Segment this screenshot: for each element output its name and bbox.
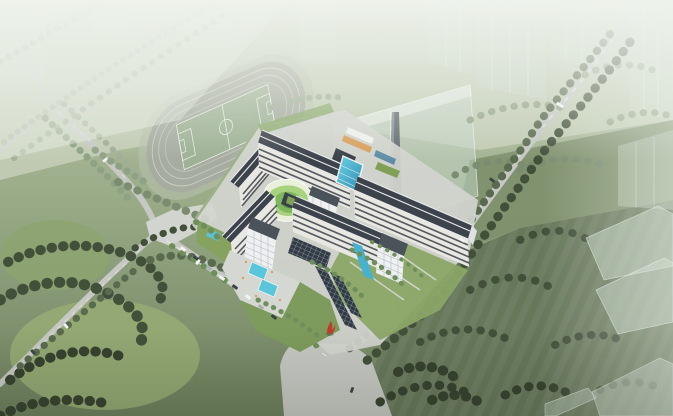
vignette-bottom	[0, 326, 673, 416]
render-canvas	[0, 0, 673, 416]
aerial-render	[0, 0, 673, 416]
